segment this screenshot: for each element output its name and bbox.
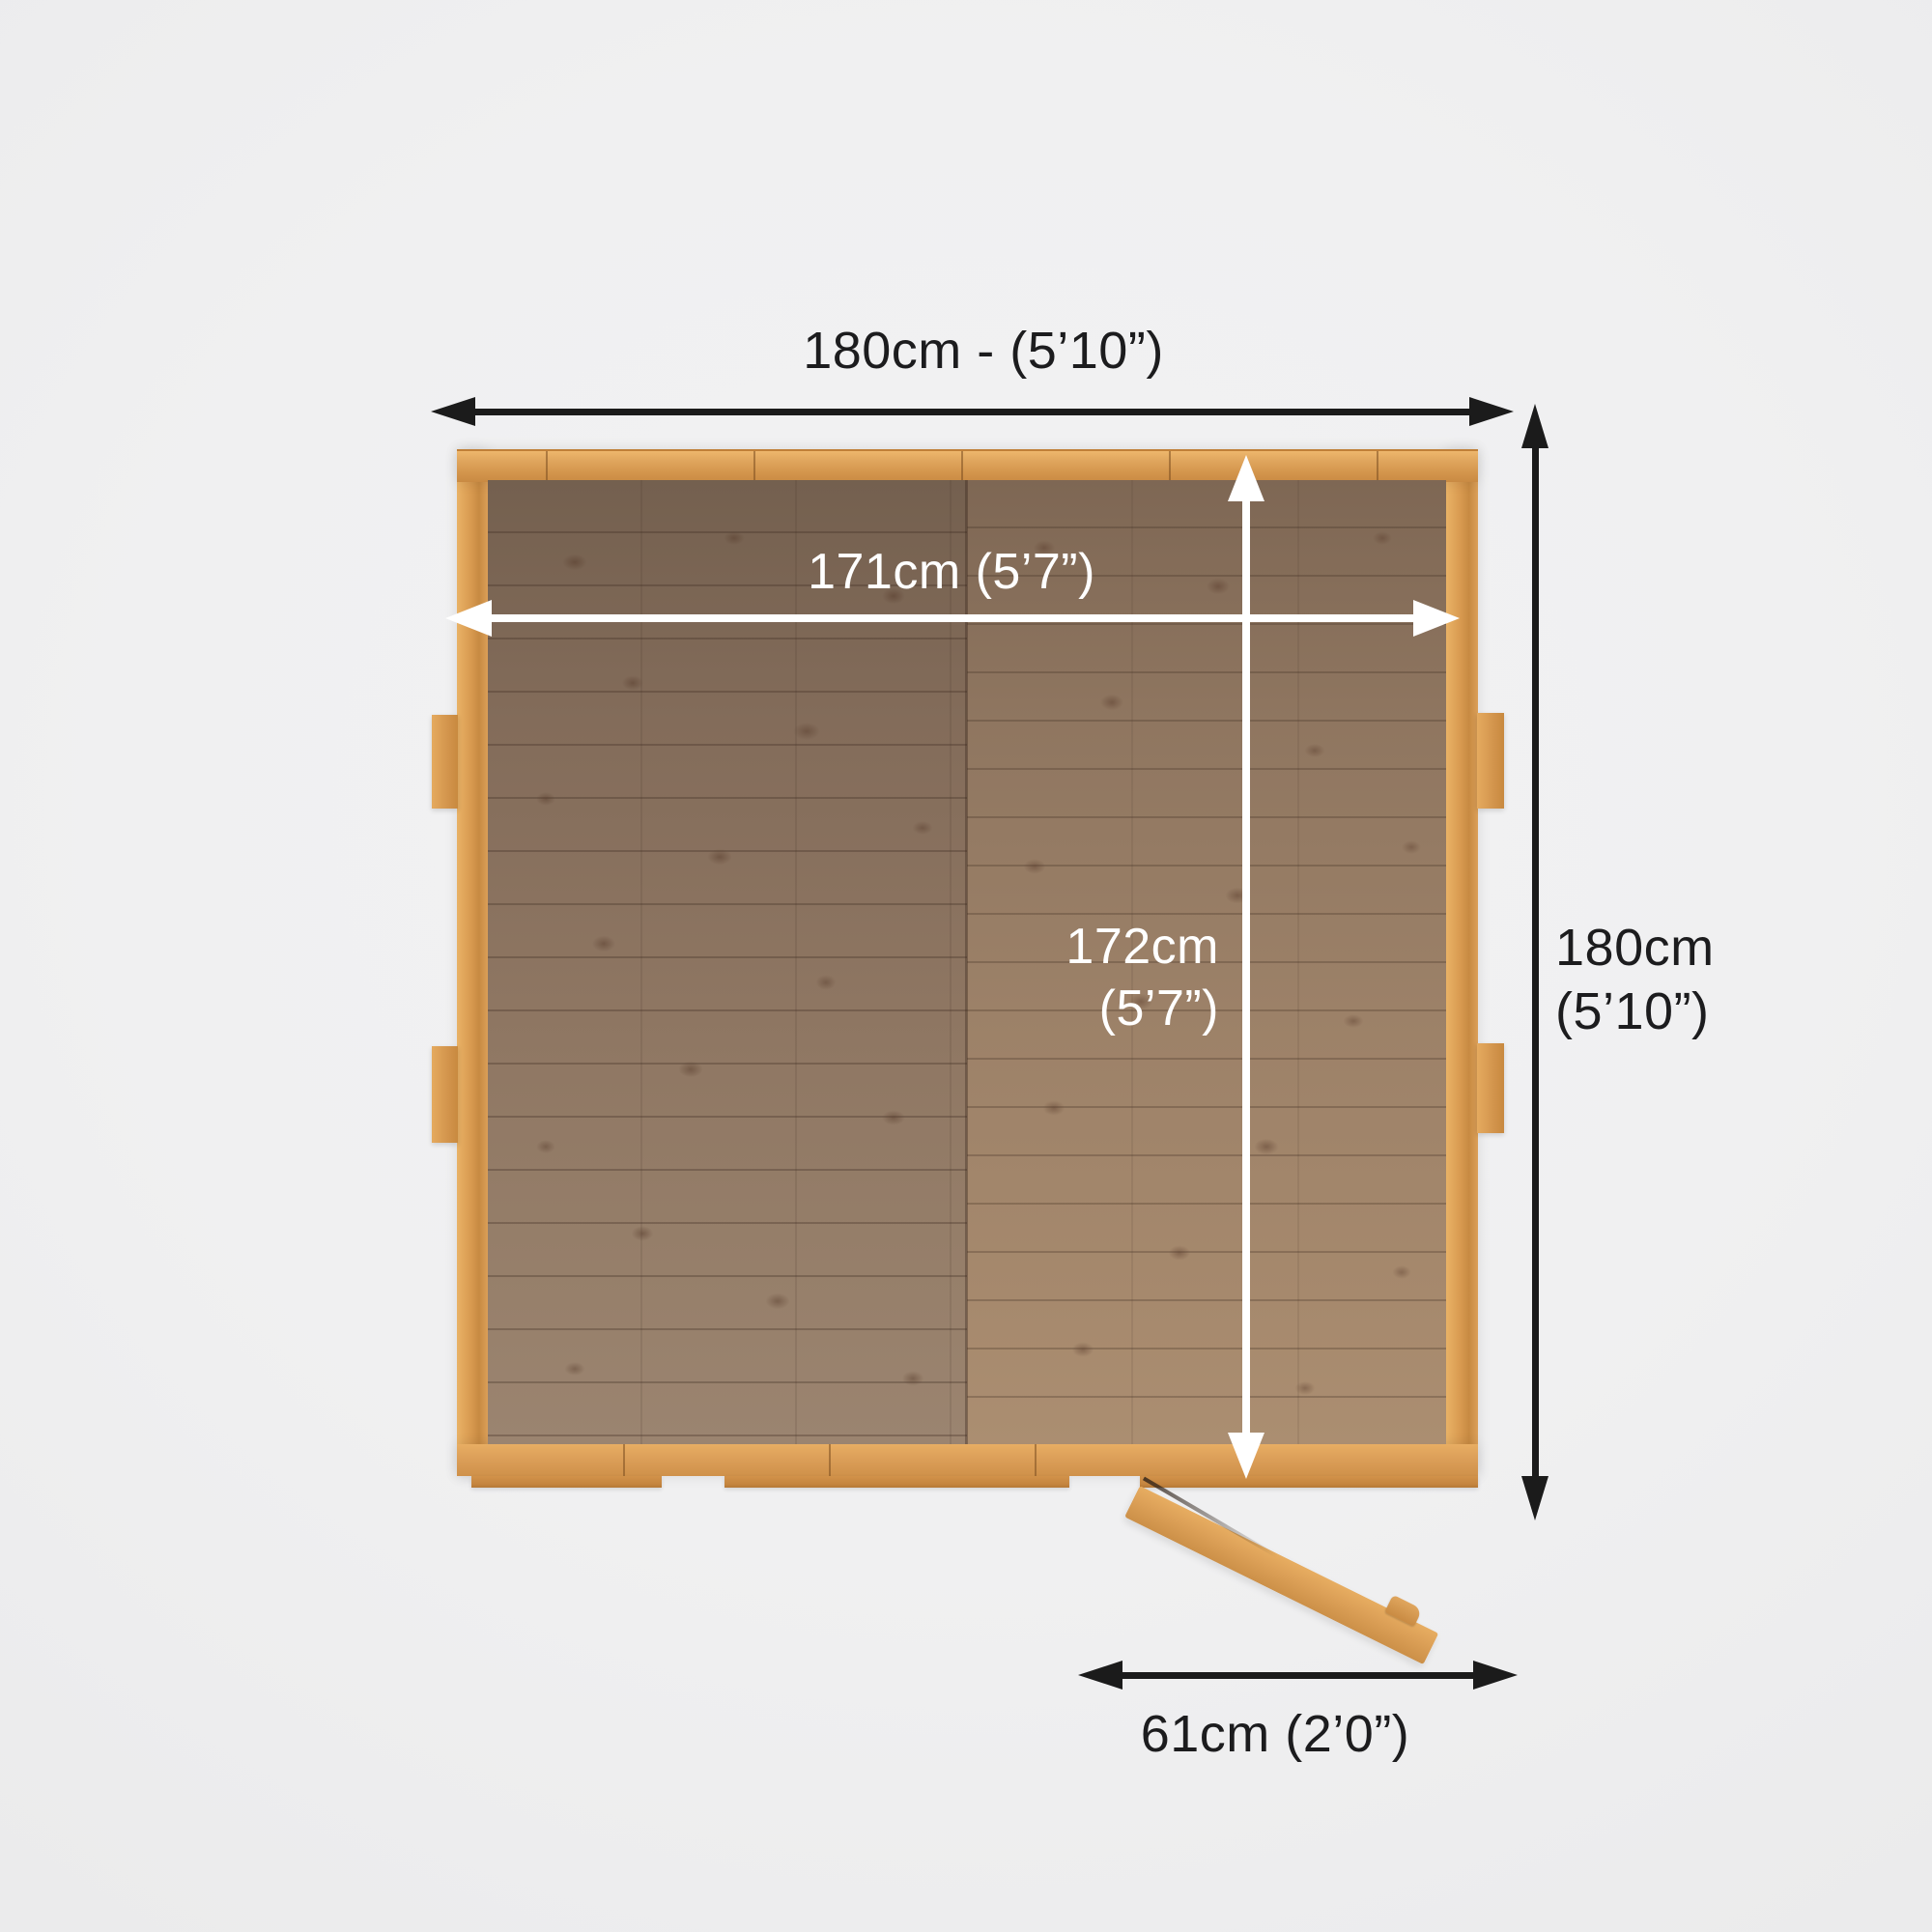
door-width-label: 61cm (2’0”) — [985, 1704, 1565, 1764]
arrowhead-up-icon — [1521, 404, 1548, 448]
frame-seam — [829, 1444, 831, 1476]
bottom-frame-lip — [1140, 1476, 1478, 1488]
bottom-frame-lip — [471, 1476, 662, 1488]
external-width-arrow — [473, 409, 1471, 415]
frame-tab-right-bottom — [1477, 1043, 1504, 1133]
door-hinge-shadow — [1143, 1477, 1278, 1558]
frame-bottom-wall — [457, 1444, 1478, 1476]
frame-seam — [1035, 1444, 1037, 1476]
bottom-frame-lip — [724, 1476, 1069, 1488]
arrowhead-up-icon — [1228, 455, 1264, 501]
arrowhead-left-icon — [1078, 1661, 1122, 1690]
external-depth-arrow — [1532, 446, 1539, 1478]
door-panel-open — [1124, 1486, 1438, 1664]
arrowhead-right-icon — [1469, 397, 1514, 426]
frame-seam — [623, 1444, 625, 1476]
arrowhead-right-icon — [1413, 600, 1460, 637]
frame-top-wall — [457, 449, 1478, 482]
frame-tab-right-top — [1477, 713, 1504, 809]
frame-seam — [1377, 451, 1378, 480]
internal-width-label: 171cm (5’7”) — [633, 543, 1270, 601]
arrowhead-left-icon — [445, 600, 492, 637]
frame-seam — [753, 451, 755, 480]
external-depth-label: 180cm (5’10”) — [1555, 916, 1864, 1043]
door-handle — [1384, 1595, 1422, 1627]
shed-dimension-diagram: 180cm - (5’10”) 171cm (5’7”) 172cm (5’7”… — [0, 0, 1932, 1932]
arrowhead-down-icon — [1521, 1476, 1548, 1520]
frame-seam — [1169, 451, 1171, 480]
frame-tab-left-bottom — [432, 1046, 458, 1143]
door-width-arrow — [1121, 1672, 1475, 1679]
floor-left-half — [488, 480, 967, 1444]
frame-seam — [961, 451, 963, 480]
internal-depth-arrow — [1242, 499, 1250, 1435]
frame-seam — [546, 451, 548, 480]
arrowhead-left-icon — [431, 397, 475, 426]
arrowhead-down-icon — [1228, 1433, 1264, 1479]
external-width-label: 180cm - (5’10”) — [665, 321, 1302, 381]
frame-tab-left-top — [432, 715, 458, 809]
arrowhead-right-icon — [1473, 1661, 1518, 1690]
internal-width-arrow — [490, 614, 1415, 622]
internal-depth-label: 172cm (5’7”) — [920, 916, 1219, 1039]
